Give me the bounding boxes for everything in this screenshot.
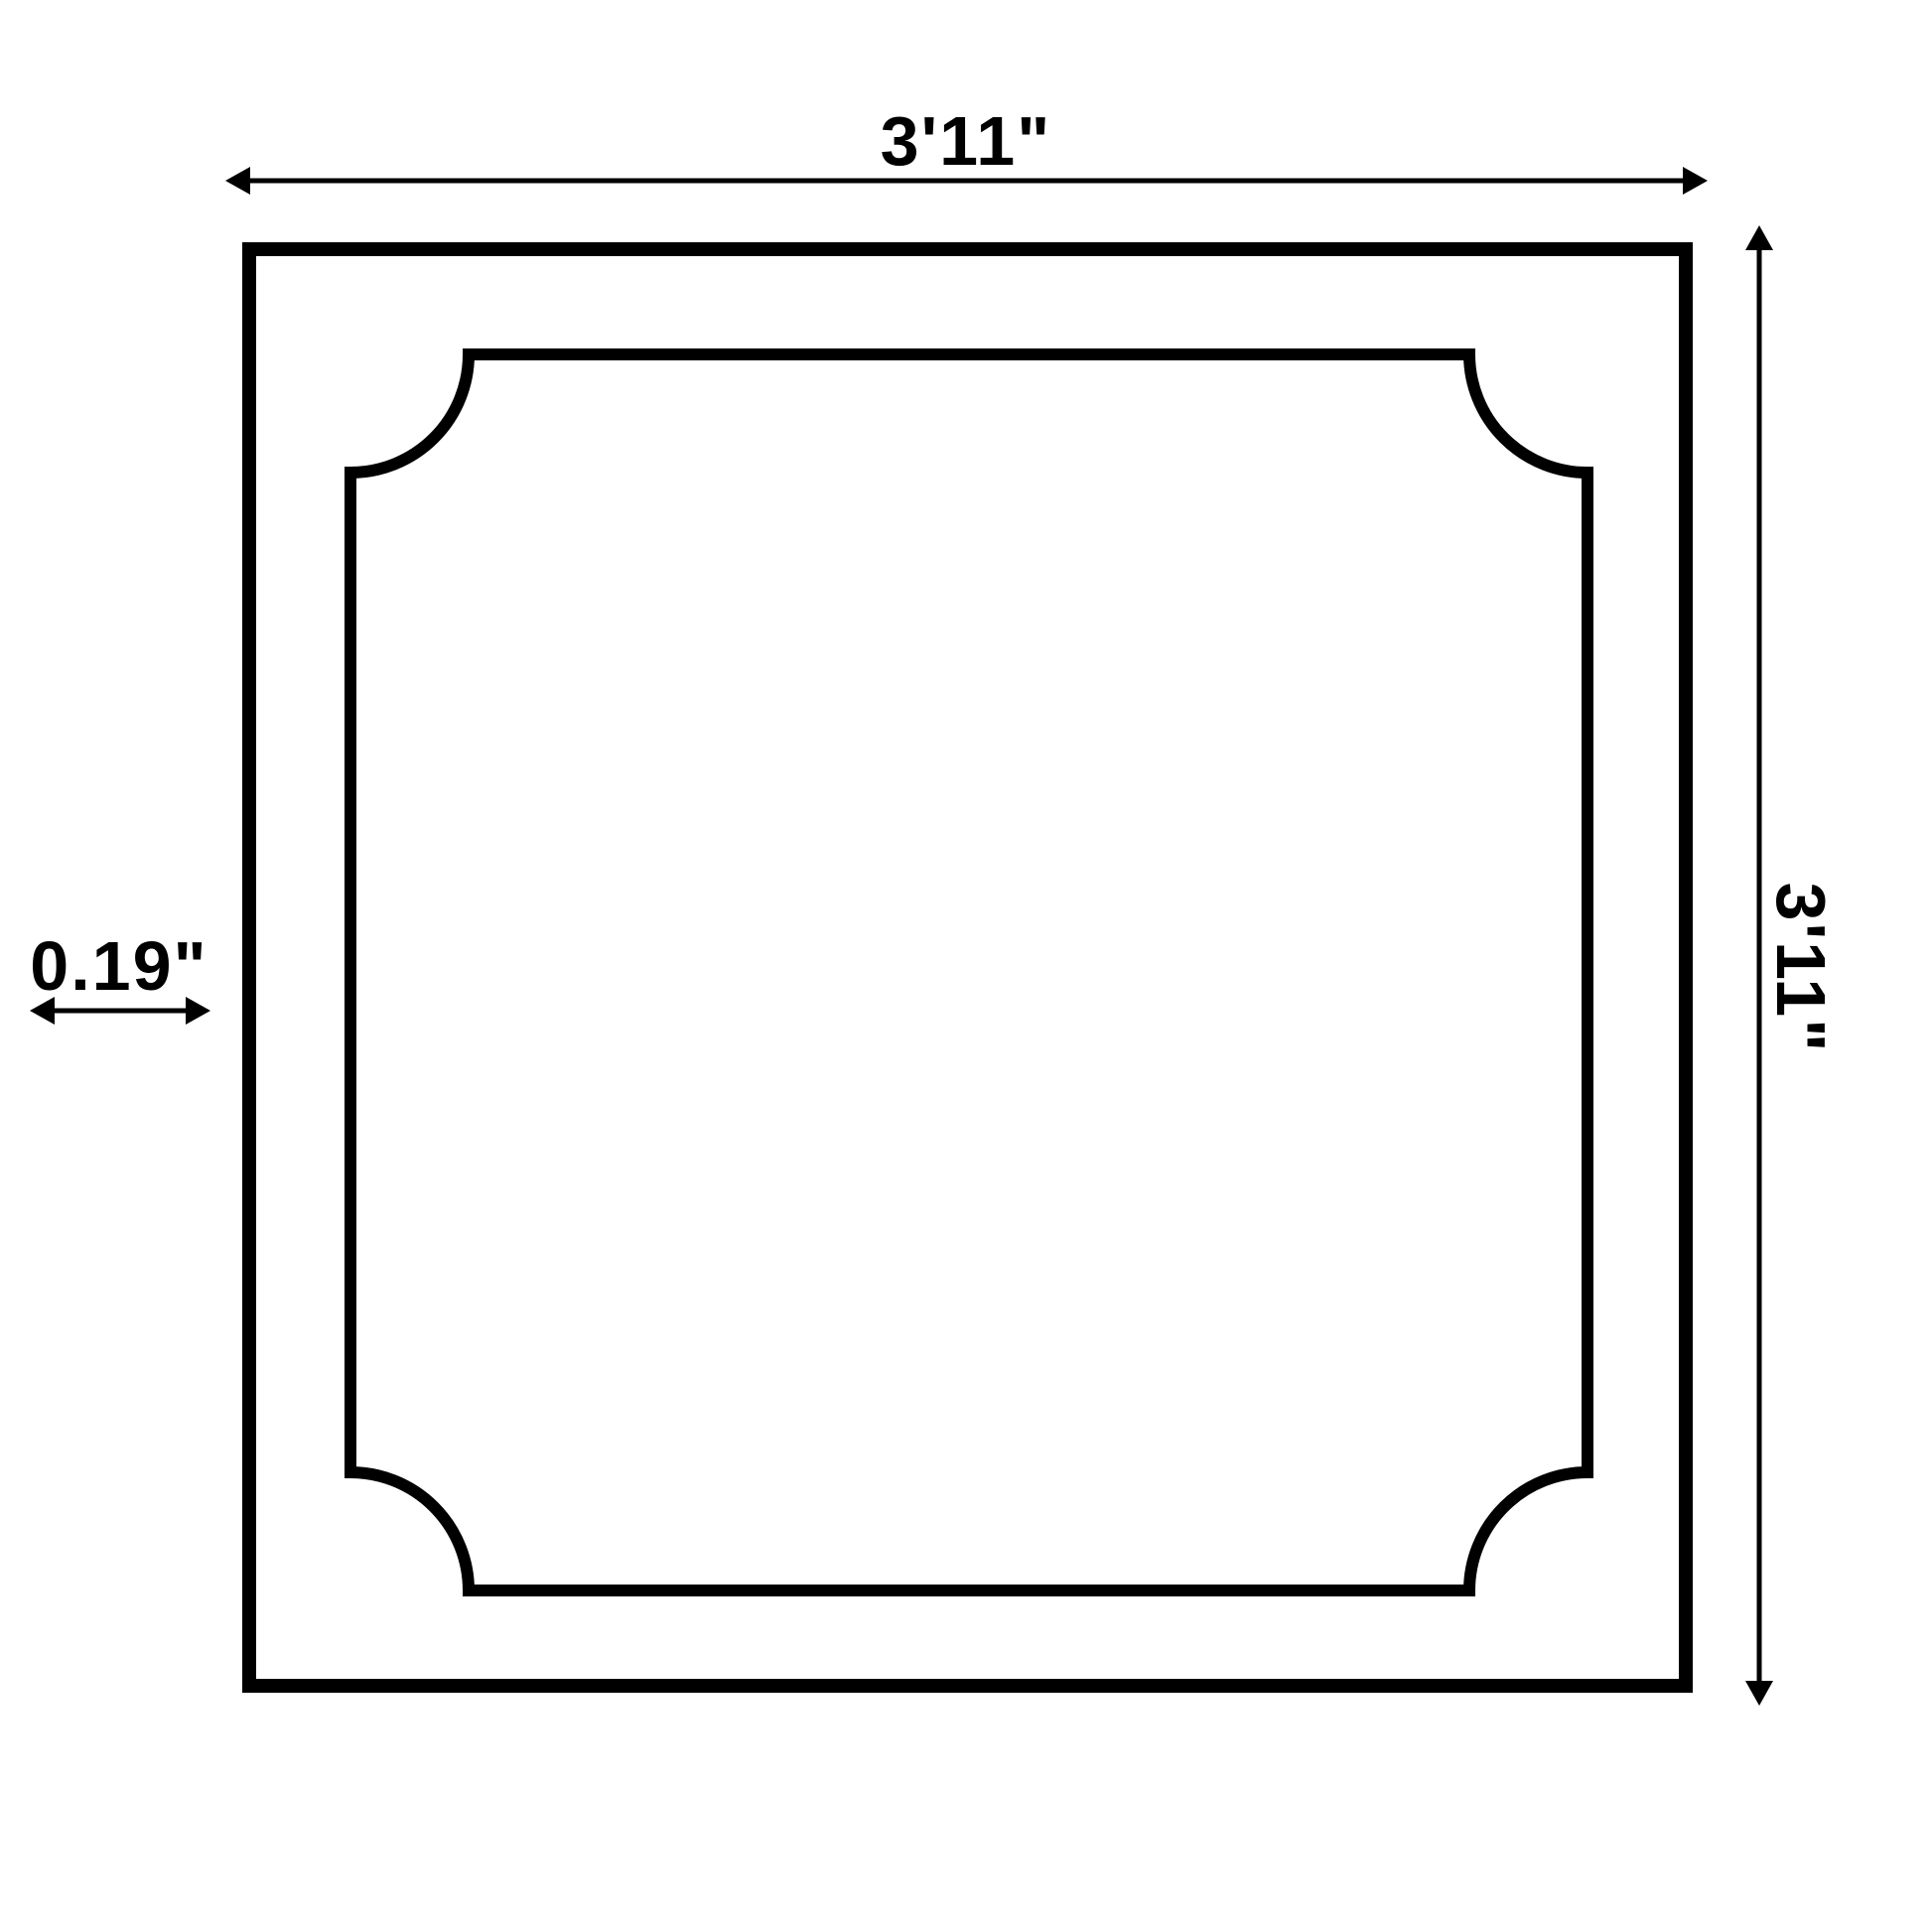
panel-inner-molding — [350, 354, 1587, 1590]
dimension-diagram: 3'11" 3'11" 0.19" — [0, 0, 1932, 1932]
height-dimension: 3'11" — [1745, 225, 1840, 1706]
panel-drawing: 3'11" 3'11" 0.19" — [0, 0, 1932, 1932]
thickness-dimension: 0.19" — [30, 927, 210, 1025]
width-dimension-label: 3'11" — [881, 102, 1052, 180]
height-dimension-label: 3'11" — [1762, 883, 1840, 1054]
arrow-right-icon — [1683, 167, 1708, 195]
arrow-up-icon — [1745, 225, 1773, 250]
arrow-left-icon — [225, 167, 250, 195]
arrow-down-icon — [1745, 1681, 1773, 1706]
panel-outer-edge — [249, 249, 1686, 1686]
width-dimension: 3'11" — [225, 102, 1708, 195]
thickness-dimension-label: 0.19" — [30, 927, 207, 1005]
